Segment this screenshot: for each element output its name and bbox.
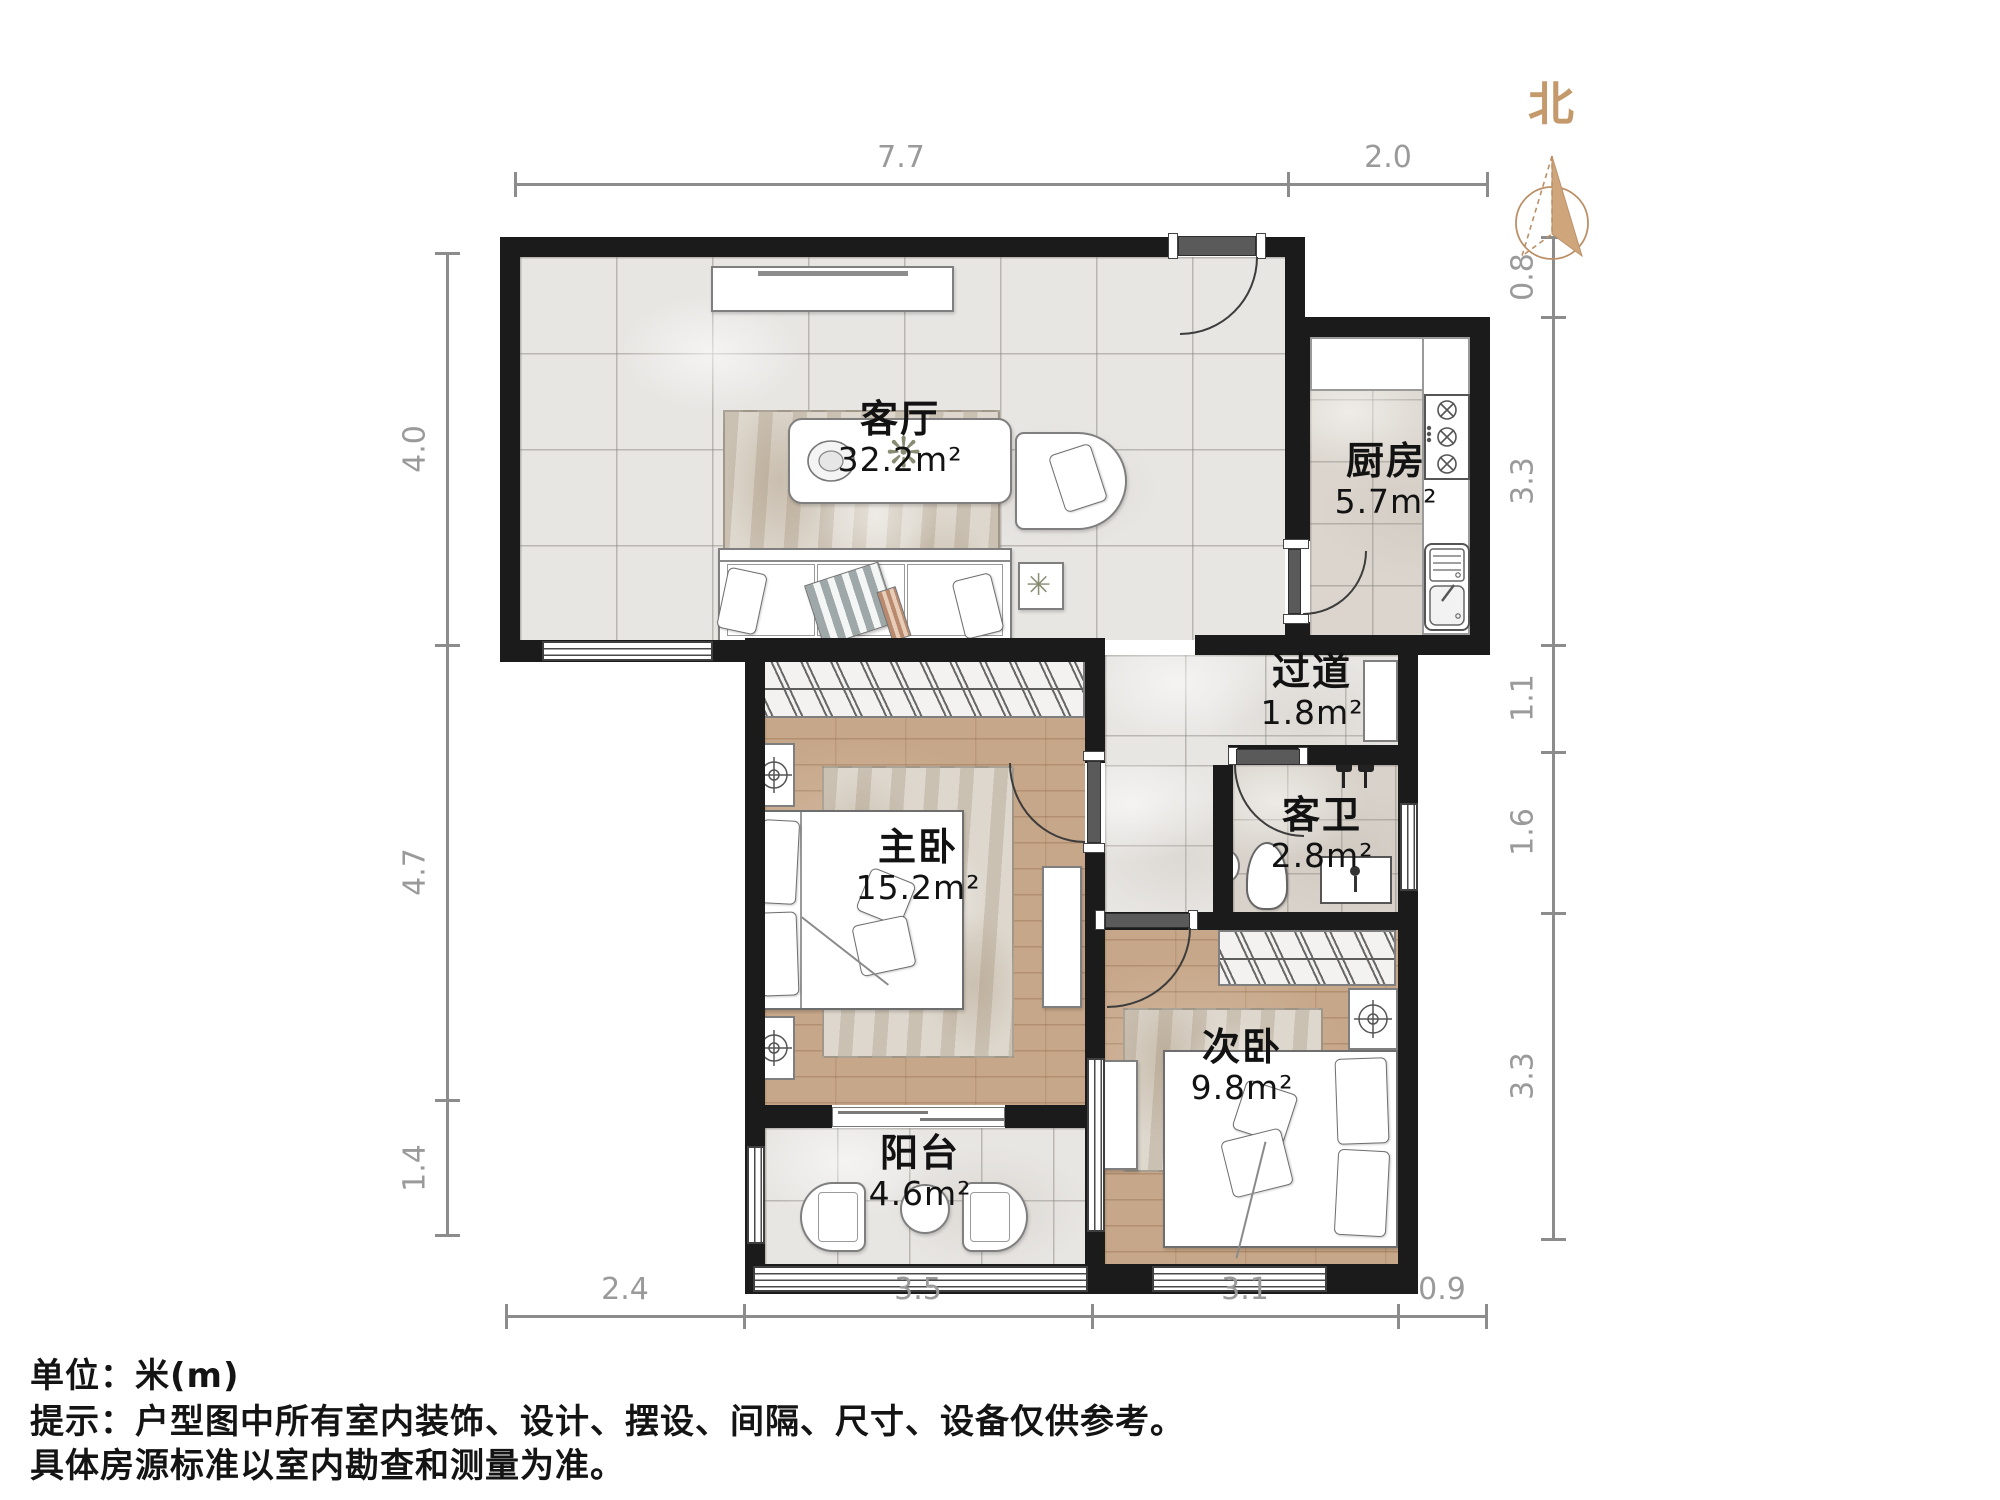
sofa-backrest	[720, 560, 1010, 562]
room-name: 过道	[1261, 653, 1364, 693]
second-bed-pillow	[1335, 1057, 1390, 1145]
door-frame-post	[1283, 539, 1309, 549]
hallway-cabinet	[1363, 660, 1398, 742]
dimension-tick	[1541, 751, 1566, 754]
dimension-tick	[505, 1304, 508, 1329]
second-bedroom-desk	[1100, 1060, 1138, 1170]
dimension-label: 1.1	[1506, 674, 1541, 722]
dimension-label: 1.6	[1506, 808, 1541, 856]
room-name: 厨房	[1335, 442, 1438, 482]
dimension-tick	[1541, 912, 1566, 915]
room-label-master-bedroom: 主卧 15.2m²	[856, 828, 981, 907]
room-label-kitchen: 厨房 5.7m²	[1335, 442, 1438, 521]
tv-set	[758, 271, 908, 276]
dimension-tick	[743, 1304, 746, 1329]
master-door-leaf	[1087, 761, 1101, 843]
dimension-tick	[1091, 1304, 1094, 1329]
wall-segment	[1285, 317, 1490, 337]
balcony-bedroom-window	[1087, 1058, 1105, 1232]
room-label-second-bedroom: 次卧 9.8m²	[1191, 1028, 1294, 1107]
dimension-line-top	[515, 183, 1488, 186]
room-name: 阳台	[869, 1134, 972, 1174]
dimension-tick	[1486, 172, 1489, 197]
dimension-tick	[1485, 1304, 1488, 1329]
bathroom-window	[1400, 803, 1418, 891]
room-area: 4.6m²	[869, 1174, 972, 1213]
door-frame-post	[1095, 910, 1105, 930]
side-table-plant-icon: ✳	[1026, 568, 1051, 603]
bathroom-fixture-stem	[1342, 772, 1345, 788]
master-wardrobe	[755, 658, 1085, 718]
dimension-tick	[514, 172, 517, 197]
balcony-chair-right-seat	[970, 1192, 1010, 1242]
dimension-line-bottom	[506, 1315, 1487, 1318]
dimension-line-left	[446, 253, 449, 1237]
door-frame-post	[1083, 751, 1105, 761]
balcony-side-window	[747, 1146, 765, 1244]
master-tv-stand	[1042, 866, 1082, 1008]
wall-segment	[1085, 655, 1105, 763]
floorplan-canvas: ❊ ✳	[0, 0, 2000, 1500]
door-frame-post	[1256, 233, 1266, 259]
corridor-floor	[1105, 765, 1213, 922]
dimension-tick	[1541, 644, 1566, 647]
dimension-tick	[1287, 172, 1290, 197]
second-bed-pillow	[1334, 1149, 1390, 1238]
dimension-tick	[435, 644, 460, 647]
room-label-living: 客厅 32.2m²	[838, 400, 963, 479]
wall-segment	[1470, 317, 1490, 655]
dimension-line-right	[1552, 237, 1555, 1240]
room-area: 5.7m²	[1335, 482, 1438, 521]
dimension-label: 1.4	[398, 1144, 433, 1192]
dimension-label: 3.1	[1221, 1272, 1269, 1307]
door-frame-post	[1283, 614, 1309, 624]
kitchen-door-leaf	[1288, 549, 1301, 614]
compass-north-label: 北	[1528, 68, 1574, 134]
wall-segment	[500, 237, 520, 660]
entrance-door-leaf	[1178, 236, 1256, 256]
dimension-label: 7.7	[877, 140, 925, 175]
bathroom-door-leaf	[1236, 749, 1300, 765]
dimension-tick	[435, 252, 460, 255]
dimension-label: 3.3	[1506, 457, 1541, 505]
wall-segment	[1213, 765, 1233, 912]
dimension-tick	[435, 1099, 460, 1102]
second-nightstand	[1348, 988, 1398, 1050]
room-label-balcony: 阳台 4.6m²	[869, 1134, 972, 1213]
room-area: 32.2m²	[838, 440, 963, 479]
dimension-label: 3.3	[1506, 1052, 1541, 1100]
dimension-tick	[435, 1234, 460, 1237]
wall-segment	[1285, 237, 1305, 337]
balcony-chair-left-seat	[818, 1192, 858, 1242]
dimension-label: 4.7	[398, 848, 433, 896]
master-bed-headboard-line	[800, 812, 802, 1008]
room-area: 1.8m²	[1261, 693, 1364, 732]
room-name: 次卧	[1191, 1028, 1294, 1068]
footer-units: 单位：米(m)	[30, 1348, 240, 1397]
dimension-tick	[1541, 316, 1566, 319]
balcony-slider-leaf	[920, 1118, 1005, 1121]
room-name: 主卧	[856, 828, 981, 868]
dimension-label: 0.9	[1418, 1272, 1466, 1307]
room-label-hallway: 过道 1.8m²	[1261, 653, 1364, 732]
room-area: 2.8m²	[1271, 836, 1374, 875]
wall-segment	[500, 237, 1172, 257]
dimension-label: 2.0	[1364, 140, 1412, 175]
footer-tip-line2: 具体房源标准以室内勘查和测量为准。	[30, 1438, 625, 1487]
dimension-label: 3.5	[894, 1272, 942, 1307]
vanity-faucet-stem	[1354, 876, 1357, 892]
footer-tip-line1: 提示：户型图中所有室内装饰、设计、摆设、间隔、尺寸、设备仅供参考。	[30, 1394, 1185, 1443]
balcony-slider-leaf	[838, 1111, 928, 1114]
wall-segment	[745, 638, 1105, 662]
second-bedroom-door-leaf	[1105, 913, 1190, 928]
room-name: 客卫	[1271, 796, 1374, 836]
door-frame-post	[1168, 233, 1178, 259]
balcony-slider-door	[832, 1107, 1005, 1127]
dimension-label: 4.0	[398, 425, 433, 473]
room-area: 9.8m²	[1191, 1068, 1294, 1107]
door-frame-post	[1083, 843, 1105, 853]
bathroom-fixture-stem	[1364, 772, 1367, 788]
living-room-window	[542, 641, 713, 661]
dimension-tick	[1397, 1304, 1400, 1329]
kitchen-sink-icon	[1424, 543, 1470, 631]
wall-segment	[1285, 337, 1310, 541]
room-name: 客厅	[838, 400, 963, 440]
dimension-tick	[1541, 1238, 1566, 1241]
room-area: 15.2m²	[856, 868, 981, 907]
dimension-label: 2.4	[601, 1272, 649, 1307]
second-wardrobe	[1218, 930, 1396, 986]
compass-icon	[1502, 128, 1602, 278]
wall-segment	[745, 1105, 832, 1128]
room-label-bathroom: 客卫 2.8m²	[1271, 796, 1374, 875]
